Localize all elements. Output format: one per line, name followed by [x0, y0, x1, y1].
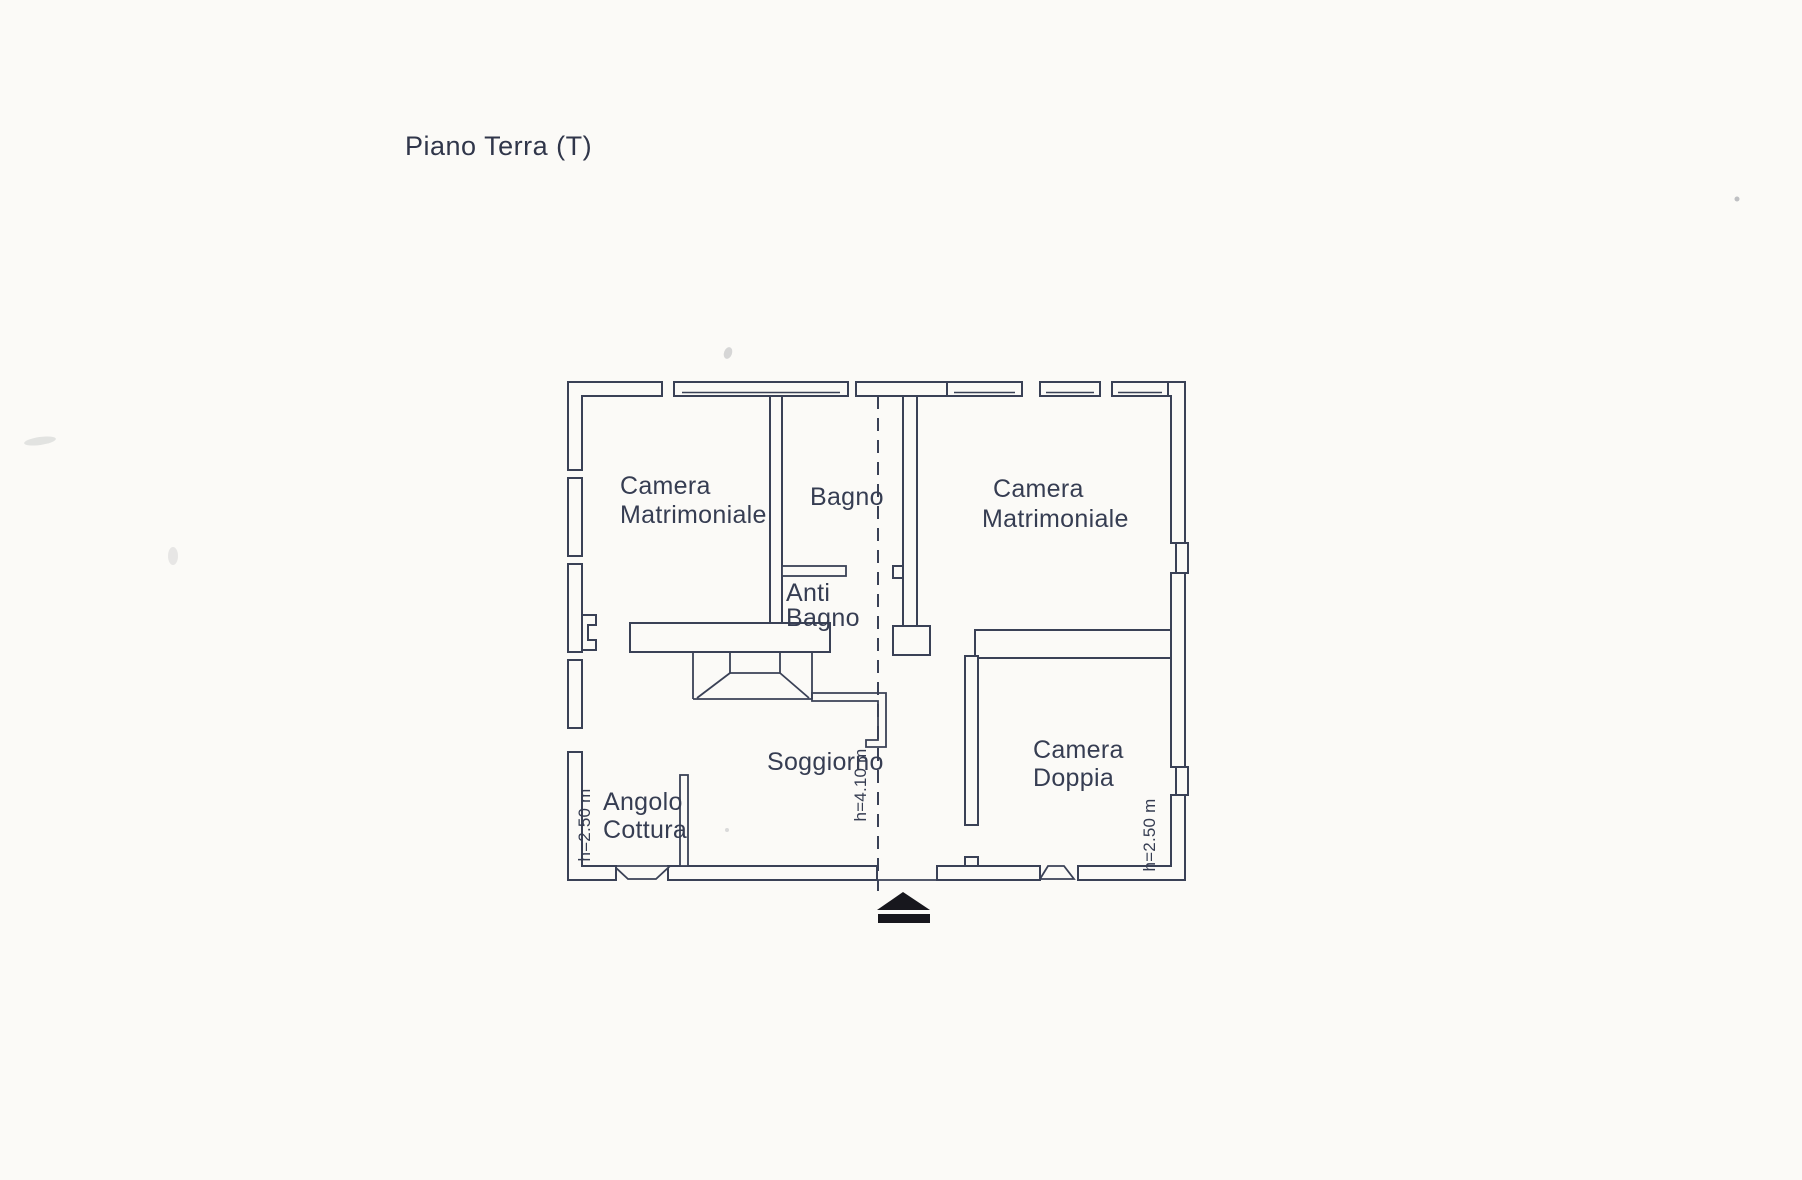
window-top-4	[1112, 382, 1168, 396]
fireplace-splay	[697, 673, 730, 698]
room-label-bagno: Bagno	[810, 483, 884, 511]
wall-segment-bottom	[937, 866, 1040, 880]
wall-segment-left	[568, 478, 582, 556]
door-pier-left	[582, 615, 596, 650]
fireplace-splay	[780, 673, 809, 698]
wall-anti-bagno-divider	[782, 566, 846, 576]
wall-segment-right	[1171, 573, 1185, 767]
dimension-label-left: h=2.50 m	[575, 789, 594, 862]
wall-bagno-left	[770, 396, 782, 623]
wall-bagno-right	[903, 396, 917, 628]
wall-pier-block	[893, 626, 930, 655]
room-label-camera-doppia: Camera	[1033, 736, 1124, 764]
room-label-camera-doppia: Doppia	[1033, 764, 1114, 792]
window-right-1	[1176, 543, 1188, 573]
wall-segment-left	[568, 660, 582, 728]
wall-segment-left	[568, 564, 582, 652]
floorplan-svg: Piano Terra (T)	[0, 0, 1802, 1180]
window-top-2	[947, 382, 1022, 396]
room-label-camera-matrimoniale-left: Matrimoniale	[620, 501, 767, 529]
window-top-1	[674, 382, 848, 396]
scan-speck	[1735, 197, 1740, 202]
room-label-angolo-cottura: Angolo	[603, 788, 683, 816]
wall-corner-top-right	[1168, 382, 1185, 543]
window-top-3	[1040, 382, 1100, 396]
wall-segment-bottom	[668, 866, 877, 880]
window-bottom-1	[614, 866, 670, 879]
page-title: Piano Terra (T)	[405, 131, 592, 161]
wall-band-camera-right	[975, 630, 1171, 658]
window-bottom-2	[1040, 866, 1074, 879]
wall-corner-bottom-right	[1078, 795, 1185, 880]
entrance-arrow-bar	[878, 914, 930, 923]
room-label-camera-matrimoniale-right: Matrimoniale	[982, 505, 1129, 533]
dimension-label-right: h=2.50 m	[1140, 799, 1159, 872]
room-label-camera-matrimoniale-left: Camera	[620, 472, 711, 500]
entrance-arrow-triangle	[877, 892, 930, 910]
wall-corner-top-left	[568, 382, 662, 470]
wall-segment-top	[856, 382, 947, 396]
room-label-camera-matrimoniale-right: Camera	[993, 475, 1084, 503]
room-label-angolo-cottura: Cottura	[603, 816, 687, 844]
wall-soggiorno-spur	[812, 693, 886, 747]
room-label-anti-bagno: Bagno	[786, 604, 860, 632]
door-jamb-camera-doppia	[965, 857, 978, 866]
entrance-arrow-icon	[877, 892, 930, 923]
scan-speck	[725, 828, 729, 832]
scan-speck	[24, 435, 57, 447]
room-label-anti-bagno: Anti	[786, 579, 830, 607]
fireplace-flue	[730, 652, 780, 673]
wall-camera-doppia-left	[965, 656, 978, 825]
scan-speck	[168, 547, 178, 565]
interior-walls	[630, 396, 1171, 866]
scan-page: Piano Terra (T)	[0, 0, 1802, 1180]
window-right-2	[1176, 767, 1188, 795]
fireplace	[693, 652, 812, 699]
scan-speck	[722, 346, 734, 360]
dimension-label-center: h=4.10 m	[851, 749, 870, 822]
door-hinge-notch	[893, 566, 903, 578]
